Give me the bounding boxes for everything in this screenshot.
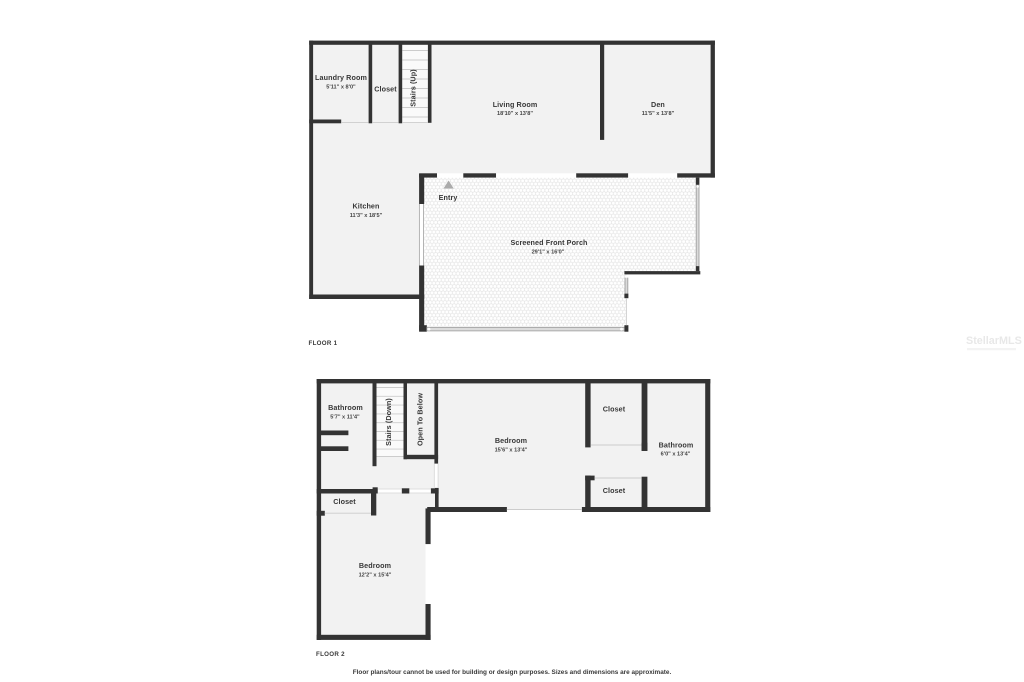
svg-text:FLOOR 2: FLOOR 2 [316, 651, 345, 658]
svg-text:Bathroom: Bathroom [328, 403, 363, 412]
svg-text:11'3" x 18'5": 11'3" x 18'5" [350, 213, 383, 219]
svg-text:18'10" x 13'8": 18'10" x 13'8" [497, 111, 533, 117]
svg-text:Closet: Closet [333, 497, 356, 506]
svg-text:StellarMLS: StellarMLS [966, 335, 1022, 347]
svg-text:12'2" x 15'4": 12'2" x 15'4" [359, 573, 392, 579]
svg-text:Open To Below: Open To Below [416, 393, 425, 446]
svg-text:Closet: Closet [374, 85, 397, 94]
svg-text:FLOOR 1: FLOOR 1 [309, 340, 338, 347]
svg-text:5'7" x 11'4": 5'7" x 11'4" [330, 415, 360, 421]
svg-text:Stairs (Down): Stairs (Down) [384, 398, 393, 446]
svg-text:Closet: Closet [603, 486, 626, 495]
svg-text:Entry: Entry [439, 193, 458, 202]
svg-text:Screened Front Porch: Screened Front Porch [510, 238, 587, 247]
svg-text:Floor plans/tour cannot be use: Floor plans/tour cannot be used for buil… [353, 669, 672, 676]
svg-text:6'0" x 13'4": 6'0" x 13'4" [661, 452, 691, 458]
svg-text:Living Room: Living Room [493, 100, 538, 109]
svg-text:Kitchen: Kitchen [352, 202, 379, 211]
svg-text:Den: Den [651, 100, 665, 109]
svg-text:5'11" x 8'0": 5'11" x 8'0" [326, 85, 356, 91]
svg-text:15'6" x 13'4": 15'6" x 13'4" [495, 448, 528, 454]
svg-text:Bedroom: Bedroom [359, 561, 391, 570]
svg-text:Bedroom: Bedroom [495, 436, 527, 445]
svg-text:Laundry Room: Laundry Room [315, 73, 367, 82]
svg-text:Closet: Closet [603, 405, 626, 414]
svg-text:11'5" x 13'8": 11'5" x 13'8" [642, 111, 675, 117]
svg-text:Bathroom: Bathroom [659, 441, 694, 450]
svg-text:Stairs (Up): Stairs (Up) [409, 69, 418, 107]
svg-text:29'1" x 16'0": 29'1" x 16'0" [532, 250, 565, 256]
